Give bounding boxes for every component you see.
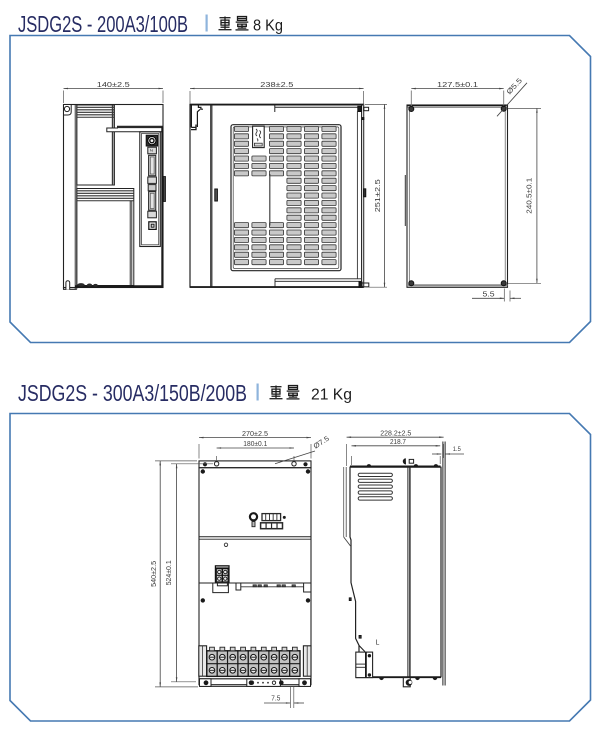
svg-text:524±0.1: 524±0.1	[166, 560, 173, 585]
svg-text:180±0.1: 180±0.1	[243, 441, 267, 448]
svg-text:21 Kg: 21 Kg	[311, 387, 352, 404]
svg-text:L: L	[376, 640, 380, 647]
svg-text:251±2.5: 251±2.5	[373, 179, 382, 212]
svg-text:270±2.5: 270±2.5	[242, 431, 268, 438]
svg-text:240.5±0.1: 240.5±0.1	[524, 178, 533, 214]
svg-text:218.7: 218.7	[390, 439, 406, 446]
svg-text:540±2.5: 540±2.5	[151, 561, 158, 587]
svg-text:Ø5.5: Ø5.5	[504, 76, 524, 96]
svg-text:140±2.5: 140±2.5	[97, 80, 130, 89]
svg-text:JSDG2S - 200A3/100B: JSDG2S - 200A3/100B	[18, 11, 188, 37]
svg-text:8 Kg: 8 Kg	[253, 18, 283, 35]
svg-text:1.5: 1.5	[453, 446, 461, 453]
svg-text:7.5: 7.5	[271, 696, 280, 703]
svg-text:JSDG2S - 300A3/150B/200B: JSDG2S - 300A3/150B/200B	[18, 380, 247, 406]
svg-text:Ø7.5: Ø7.5	[312, 434, 331, 451]
svg-text:127.5±0.1: 127.5±0.1	[437, 80, 478, 89]
svg-text:238±2.5: 238±2.5	[260, 80, 293, 89]
svg-text:5.5: 5.5	[483, 289, 495, 298]
svg-text:228.2±2.5: 228.2±2.5	[380, 430, 411, 437]
